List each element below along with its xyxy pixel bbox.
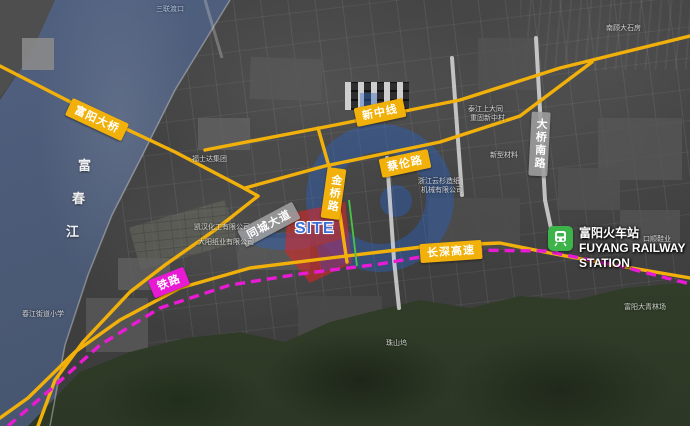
river-name-char: 富 (78, 155, 91, 174)
railway-station-callout: 富阳火车站 FUYANG RAILWAY STATION (548, 226, 685, 271)
road-label-daqiao-south-road: 大桥南路 (528, 112, 550, 177)
shoreline (50, 0, 230, 426)
railway-line (8, 250, 690, 426)
poi-label: 珠山坞 (386, 340, 407, 348)
road-minor-bridge (205, 0, 222, 58)
poi-label: 大阳纸业有限公司 (198, 239, 254, 247)
poi-label: 三联渡口 (156, 6, 184, 14)
station-name-en-2: STATION (579, 256, 685, 271)
site-label: SITE (295, 220, 335, 238)
train-icon (548, 226, 573, 251)
poi-label: 福士达集团 (192, 156, 227, 164)
map-canvas: 富阳大桥 新中线 蔡伦路 金桥路 长深高速 铁路 大桥南路 同城大道 SITE … (0, 0, 690, 426)
poi-label: 浙江云杉造纸 (418, 178, 460, 186)
road-white-north (452, 58, 462, 195)
road-xinzhong-line (205, 36, 690, 150)
poi-label: 春江街道小学 (22, 311, 64, 319)
poi-label: 凯汉化工有限公司 (194, 224, 250, 232)
poi-label: 南顾大石房 (606, 25, 641, 33)
poi-label: 富阳大青林场 (624, 304, 666, 312)
river-name-char: 江 (66, 221, 79, 240)
poi-label: 泰江上大同 (468, 106, 503, 114)
river-name-char: 春 (72, 188, 85, 207)
poi-label: 重固新中村 (470, 115, 505, 123)
road-fuyang-bridge (0, 66, 258, 196)
poi-label: 口顺鞋业 (643, 236, 671, 244)
poi-label: 新型材料 (490, 152, 518, 160)
map-overlay-svg (0, 0, 690, 426)
road-white-center (387, 158, 399, 308)
poi-label: 机械有限公司 (421, 187, 463, 195)
